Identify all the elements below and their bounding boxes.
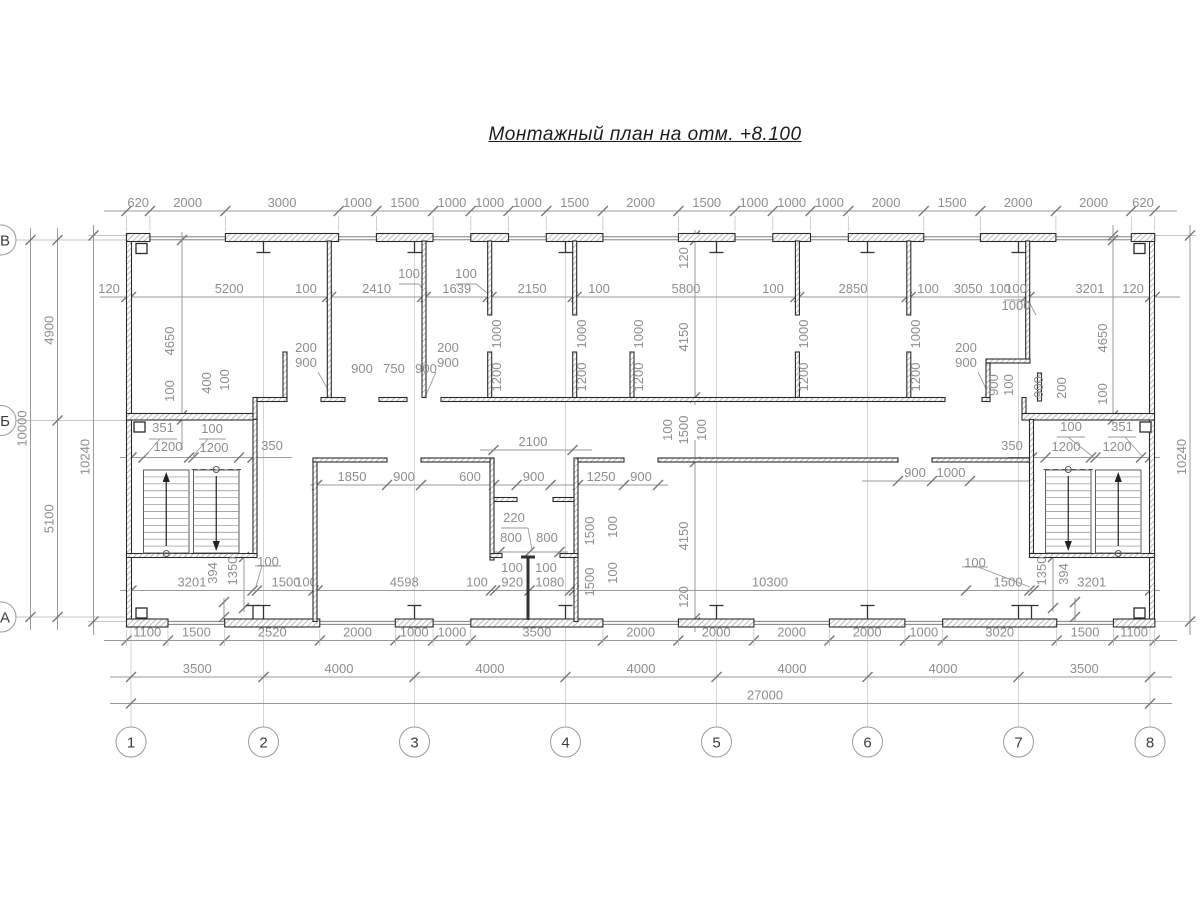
svg-text:1000: 1000 (908, 320, 923, 349)
svg-text:5100: 5100 (42, 504, 57, 533)
svg-text:800: 800 (500, 530, 522, 545)
svg-text:1000: 1000 (631, 320, 646, 349)
svg-text:4000: 4000 (929, 661, 958, 676)
svg-text:1000: 1000 (574, 320, 589, 349)
svg-text:2410: 2410 (362, 281, 391, 296)
floor-plan: 6202000300010001500100010001000150020001… (0, 0, 1200, 900)
svg-text:3: 3 (410, 734, 418, 751)
svg-text:100: 100 (501, 560, 523, 575)
svg-text:2000: 2000 (1079, 195, 1108, 210)
svg-text:100: 100 (466, 575, 488, 590)
svg-text:1000: 1000 (343, 195, 372, 210)
svg-text:100: 100 (1001, 374, 1016, 396)
svg-text:394: 394 (205, 562, 220, 584)
svg-text:2000: 2000 (872, 195, 901, 210)
svg-text:5: 5 (712, 734, 720, 751)
svg-text:1250: 1250 (587, 469, 616, 484)
svg-text:350: 350 (1001, 438, 1023, 453)
svg-text:1000: 1000 (909, 625, 938, 640)
dim-axis-spans: 3500400040004000400040003500 (110, 661, 1172, 682)
svg-text:1080: 1080 (535, 575, 564, 590)
svg-text:100: 100 (917, 281, 939, 296)
svg-text:100: 100 (1005, 281, 1027, 296)
svg-text:1200: 1200 (1052, 439, 1081, 454)
svg-text:1850: 1850 (338, 469, 367, 484)
svg-text:1500: 1500 (582, 517, 597, 546)
column-symbols (246, 241, 1039, 619)
svg-text:3201: 3201 (178, 575, 207, 590)
svg-text:100: 100 (588, 281, 610, 296)
column-axis-bubble: 3 (400, 727, 430, 757)
svg-text:4900: 4900 (42, 316, 57, 345)
svg-text:1500: 1500 (692, 195, 721, 210)
dim-mid-top (690, 230, 700, 405)
svg-text:1000: 1000 (513, 195, 542, 210)
svg-text:900: 900 (986, 374, 1001, 396)
dim-right-doors: 9001000 (862, 465, 1035, 486)
svg-text:100: 100 (762, 281, 784, 296)
svg-text:4598: 4598 (390, 575, 419, 590)
svg-text:3500: 3500 (1070, 661, 1099, 676)
svg-text:1200: 1200 (1103, 439, 1132, 454)
svg-text:100: 100 (162, 380, 177, 402)
svg-text:8: 8 (1146, 734, 1154, 751)
svg-text:2150: 2150 (518, 281, 547, 296)
svg-text:1000: 1000 (739, 195, 768, 210)
svg-text:100: 100 (605, 516, 620, 538)
svg-text:100: 100 (455, 266, 477, 281)
svg-text:4: 4 (561, 734, 569, 751)
svg-text:1000: 1000 (437, 195, 466, 210)
dim-left-10240: 10240 (78, 225, 99, 635)
svg-text:1000: 1000 (815, 195, 844, 210)
dim-lower-rooms: 18509006009001250900 (310, 469, 668, 490)
svg-text:100: 100 (1060, 419, 1082, 434)
svg-text:900: 900 (523, 469, 545, 484)
svg-text:120: 120 (676, 247, 691, 269)
svg-text:4150: 4150 (676, 522, 691, 551)
dim-left-rows: 49005100 (42, 228, 63, 630)
svg-text:900: 900 (437, 355, 459, 370)
svg-text:220: 220 (503, 510, 525, 525)
svg-text:620: 620 (127, 195, 149, 210)
svg-text:4150: 4150 (676, 323, 691, 352)
dim-left-10000: 10000 (15, 228, 36, 630)
dim-lower-inner: 32011500100459810092010801030015003201 (120, 575, 1160, 596)
svg-text:Б: Б (0, 413, 10, 430)
svg-text:100: 100 (964, 555, 986, 570)
svg-text:200: 200 (955, 340, 977, 355)
svg-text:100: 100 (398, 266, 420, 281)
svg-text:350: 350 (261, 438, 283, 453)
column-axis-bubble: 4 (551, 727, 581, 757)
svg-text:1500: 1500 (582, 568, 597, 597)
svg-text:1: 1 (127, 734, 135, 751)
svg-text:7: 7 (1014, 734, 1022, 751)
dim-bottom-openings: 1100150025202000100010003500200020002000… (104, 625, 1177, 647)
svg-text:1200: 1200 (796, 363, 811, 392)
svg-text:100: 100 (295, 281, 317, 296)
svg-text:1350: 1350 (1034, 557, 1049, 586)
svg-text:920: 920 (501, 575, 523, 590)
svg-text:4650: 4650 (162, 327, 177, 356)
svg-text:10300: 10300 (752, 575, 788, 590)
dim-r-394 (1070, 597, 1080, 622)
svg-text:3000: 3000 (268, 195, 297, 210)
svg-text:1200: 1200 (574, 363, 589, 392)
svg-text:900: 900 (393, 469, 415, 484)
column-axis-bubble: 2 (249, 727, 279, 757)
svg-text:1200: 1200 (489, 363, 504, 392)
svg-text:900: 900 (955, 355, 977, 370)
svg-text:10000: 10000 (15, 410, 30, 446)
svg-text:А: А (0, 609, 10, 626)
svg-text:200: 200 (295, 340, 317, 355)
svg-text:4650: 4650 (1095, 324, 1110, 353)
svg-text:100: 100 (201, 421, 223, 436)
svg-text:100: 100 (694, 419, 709, 441)
svg-text:620: 620 (1132, 195, 1154, 210)
svg-text:3201: 3201 (1077, 575, 1106, 590)
column-axis-bubble: 5 (702, 727, 732, 757)
svg-text:1000: 1000 (777, 195, 806, 210)
svg-text:120: 120 (676, 586, 691, 608)
svg-text:900: 900 (415, 361, 437, 376)
svg-text:2000: 2000 (626, 625, 655, 640)
dim-right-10240: 10240 (1174, 225, 1195, 635)
svg-text:1000: 1000 (475, 195, 504, 210)
svg-text:100: 100 (217, 369, 232, 391)
svg-text:27000: 27000 (747, 688, 783, 703)
dim-top: 6202000300010001500100010001000150020001… (104, 195, 1177, 231)
svg-text:100: 100 (605, 562, 620, 584)
svg-text:100: 100 (1095, 383, 1110, 405)
svg-text:2100: 2100 (519, 434, 548, 449)
svg-text:100: 100 (535, 560, 557, 575)
svg-text:351: 351 (1111, 419, 1133, 434)
dim-mid-bottom (690, 440, 700, 632)
svg-text:6: 6 (863, 734, 871, 751)
svg-text:1500: 1500 (1071, 625, 1100, 640)
row-axis-bubble: В (0, 225, 16, 255)
svg-text:1500: 1500 (938, 195, 967, 210)
svg-text:1500: 1500 (676, 416, 691, 445)
svg-text:5200: 5200 (215, 281, 244, 296)
svg-text:2000: 2000 (343, 625, 372, 640)
svg-text:1000: 1000 (796, 320, 811, 349)
row-axis-bubble: А (0, 602, 16, 632)
svg-text:5800: 5800 (671, 281, 700, 296)
svg-text:4000: 4000 (627, 661, 656, 676)
dim-l-394 (219, 597, 229, 622)
svg-text:2000: 2000 (1004, 195, 1033, 210)
svg-text:10240: 10240 (78, 439, 93, 475)
svg-text:2850: 2850 (839, 281, 868, 296)
svg-text:100: 100 (660, 419, 675, 441)
svg-text:600: 600 (459, 469, 481, 484)
svg-text:900: 900 (630, 469, 652, 484)
column-axis-bubble: 6 (853, 727, 883, 757)
dim-lobby-2100: 2100 (480, 434, 592, 455)
column-axis-bubble: 7 (1004, 727, 1034, 757)
svg-text:120: 120 (98, 281, 120, 296)
dim-l-1350 (239, 552, 249, 613)
svg-text:900: 900 (904, 465, 926, 480)
svg-text:1000: 1000 (937, 465, 966, 480)
svg-text:10240: 10240 (1174, 439, 1189, 475)
svg-text:1350: 1350 (225, 557, 240, 586)
svg-text:3500: 3500 (183, 661, 212, 676)
svg-text:800: 800 (536, 530, 558, 545)
free-dimension-labels: 4650100400100200900200900900750900100012… (152, 247, 1133, 608)
svg-text:200: 200 (1054, 377, 1069, 399)
svg-text:100: 100 (257, 554, 279, 569)
svg-text:200: 200 (437, 340, 459, 355)
svg-text:1200: 1200 (631, 363, 646, 392)
svg-text:1200: 1200 (908, 363, 923, 392)
svg-text:2000: 2000 (626, 195, 655, 210)
svg-text:1000: 1000 (489, 320, 504, 349)
svg-text:1500: 1500 (560, 195, 589, 210)
svg-text:394: 394 (1056, 563, 1071, 585)
svg-text:900: 900 (1031, 376, 1046, 398)
svg-text:1200: 1200 (154, 439, 183, 454)
svg-text:В: В (0, 232, 10, 249)
svg-text:2: 2 (259, 734, 267, 751)
svg-text:120: 120 (1122, 281, 1144, 296)
svg-text:1500: 1500 (182, 625, 211, 640)
svg-text:900: 900 (295, 355, 317, 370)
svg-text:3201: 3201 (1075, 281, 1104, 296)
svg-text:1000: 1000 (437, 625, 466, 640)
column-axis-bubble: 1 (116, 727, 146, 757)
svg-text:750: 750 (383, 361, 405, 376)
column-axis-bubble: 8 (1135, 727, 1165, 757)
svg-text:1639: 1639 (442, 281, 471, 296)
svg-text:1200: 1200 (200, 440, 229, 455)
svg-text:4000: 4000 (325, 661, 354, 676)
svg-text:4000: 4000 (778, 661, 807, 676)
svg-text:900: 900 (351, 361, 373, 376)
svg-text:2000: 2000 (777, 625, 806, 640)
svg-text:400: 400 (199, 372, 214, 394)
svg-text:1500: 1500 (390, 195, 419, 210)
svg-text:3050: 3050 (954, 281, 983, 296)
drawing-page: Монтажный план на отм. +8.100 6202000300… (0, 0, 1200, 900)
svg-text:1000: 1000 (1002, 298, 1031, 313)
svg-text:351: 351 (152, 420, 174, 435)
svg-text:4000: 4000 (476, 661, 505, 676)
svg-text:2000: 2000 (173, 195, 202, 210)
dim-total: 27000 (110, 688, 1172, 709)
